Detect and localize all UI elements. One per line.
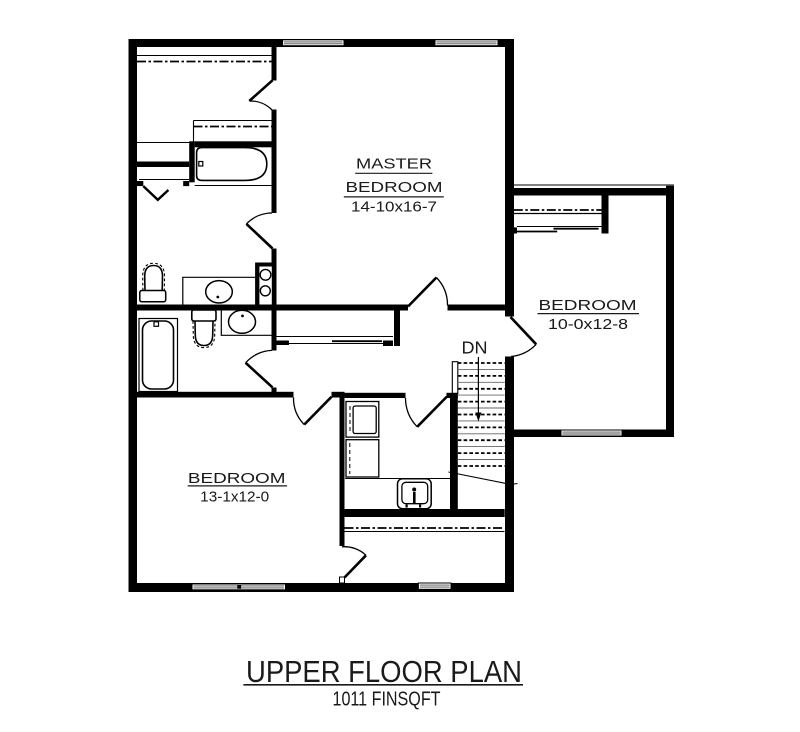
svg-text:MASTER: MASTER <box>356 156 432 173</box>
svg-text:13-1x12-0: 13-1x12-0 <box>200 488 269 505</box>
svg-text:UPPER FLOOR PLAN: UPPER FLOOR PLAN <box>246 654 522 689</box>
svg-text:1011 FINSQFT: 1011 FINSQFT <box>333 689 441 711</box>
svg-text:BEDROOM: BEDROOM <box>539 297 637 314</box>
svg-text:BEDROOM: BEDROOM <box>346 179 443 196</box>
svg-text:14-10x16-7: 14-10x16-7 <box>351 199 437 216</box>
svg-text:BEDROOM: BEDROOM <box>188 470 286 487</box>
svg-text:DN: DN <box>462 338 488 358</box>
svg-text:10-0x12-8: 10-0x12-8 <box>548 316 628 333</box>
